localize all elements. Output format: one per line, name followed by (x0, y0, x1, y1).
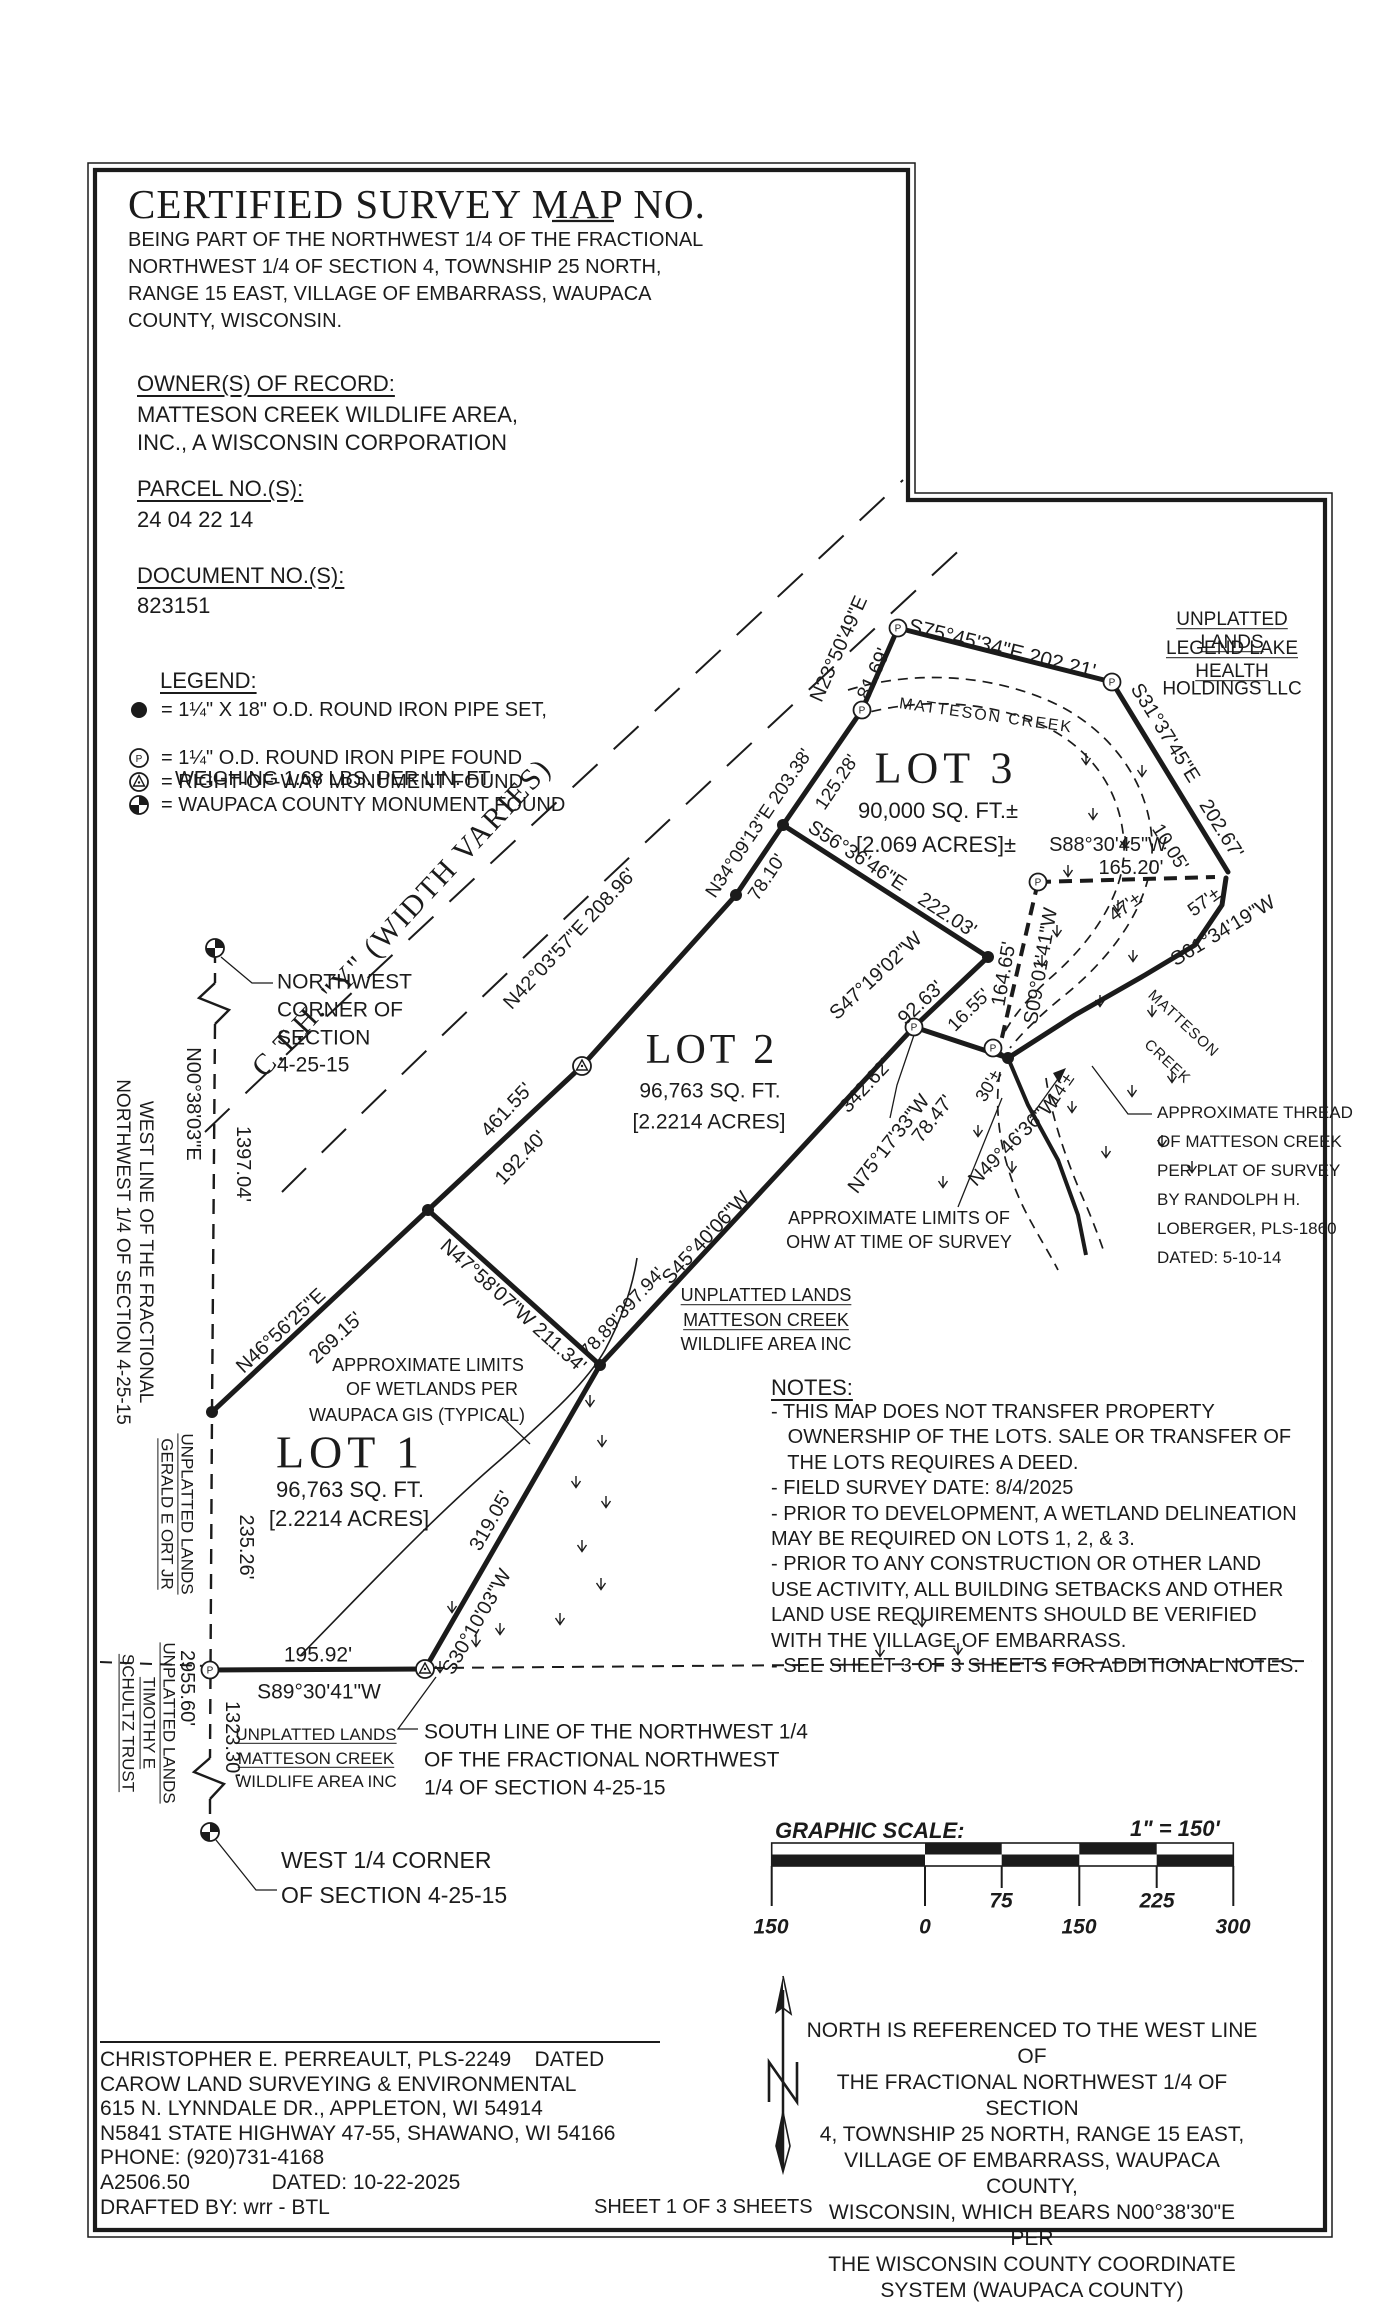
map-label: S89°30'41"W (257, 1679, 381, 1704)
sheet-number-label: SHEET 1 OF 3 SHEETS (594, 2196, 813, 2219)
legend-text: = 1¼" X 18" O.D. ROUND IRON PIPE SET, (161, 699, 547, 722)
map-label: 90,000 SQ. FT.± (858, 798, 1018, 824)
surveyor-line: N5841 STATE HIGHWAY 47-55, SHAWANO, WI 5… (100, 2122, 615, 2147)
map-label: [2.069 ACRES]± (856, 832, 1016, 858)
map-label: SECTION (277, 1025, 370, 1050)
map-label: OF WETLANDS PER (346, 1379, 518, 1401)
iron-pipe-found-icon: P (127, 746, 151, 770)
north-note-line: VILLAGE OF EMBARRASS, WAUPACA COUNTY, (806, 2148, 1258, 2200)
scale-tick-label: 75 (989, 1888, 1012, 1913)
map-label: 16.55' (944, 985, 996, 1037)
map-label: SOUTH LINE OF THE NORTHWEST 1/4 (424, 1719, 808, 1744)
map-label: 222.03' (913, 887, 981, 943)
north-note-line: NORTH IS REFERENCED TO THE WEST LINE OF (806, 2018, 1258, 2070)
map-label: S09°01'41"W (1019, 906, 1063, 1026)
document-heading: DOCUMENT NO.(S): (137, 563, 344, 589)
legend-item: P = 1¼" O.D. ROUND IRON PIPE FOUND (127, 747, 522, 770)
note-line: USE ACTIVITY, ALL BUILDING SETBACKS AND … (771, 1578, 1299, 1603)
map-label: MATTESON CREEK (898, 694, 1074, 737)
graphic-scale-label: GRAPHIC SCALE: (775, 1818, 964, 1844)
note-line: - THIS MAP DOES NOT TRANSFER PROPERTY (771, 1400, 1299, 1425)
north-note-line: WISCONSIN, WHICH BEARS N00°38'30"E PER (806, 2200, 1258, 2252)
map-label: CREEK (1140, 1036, 1194, 1088)
surveyor-line: DRAFTED BY: wrr - BTL (100, 2196, 615, 2221)
north-note-line: SYSTEM (WAUPACA COUNTY) (806, 2278, 1258, 2304)
north-note-line: THE FRACTIONAL NORTHWEST 1/4 OF SECTION (806, 2070, 1258, 2122)
map-label: [2.2214 ACRES] (269, 1506, 429, 1532)
map-label: N49°46'36"W (963, 1090, 1064, 1191)
county-monument-icon (127, 793, 151, 817)
note-line: WITH THE VILLAGE OF EMBARRASS. (771, 1629, 1299, 1654)
map-label: 57'± (1184, 883, 1226, 922)
subtitle: BEING PART OF THE NORTHWEST 1/4 OF THE F… (128, 227, 703, 335)
scale-ratio-label: 1" = 150' (1130, 1816, 1220, 1842)
map-label: DATED: 5-10-14 (1157, 1248, 1281, 1268)
scale-tick-label: 225 (1139, 1888, 1174, 1913)
note-line: - SEE SHEET 3 OF 3 SHEETS FOR ADDITIONAL… (771, 1654, 1299, 1679)
map-label: 202.67' (1194, 795, 1249, 863)
map-label: OF MATTESON CREEK (1157, 1132, 1342, 1152)
map-label: 92.63' (893, 976, 949, 1030)
map-label: LOT 2 (646, 1025, 778, 1075)
owner-line: MATTESON CREEK WILDLIFE AREA, (137, 401, 518, 429)
map-label: S45°40'06"W (657, 1187, 755, 1290)
map-label: PER PLAT OF SURVEY (1157, 1161, 1340, 1181)
map-label: OHW AT TIME OF SURVEY (786, 1232, 1012, 1254)
scale-tick-label: 300 (1215, 1914, 1250, 1939)
map-label: 235.26' (234, 1515, 258, 1580)
map-label: 96,763 SQ. FT. (276, 1477, 424, 1503)
map-label: LOT 1 (276, 1424, 424, 1479)
parcel-value: 24 04 22 14 (137, 506, 253, 534)
note-line: OWNERSHIP OF THE LOTS. SALE OR TRANSFER … (771, 1425, 1299, 1450)
owner-lines: MATTESON CREEK WILDLIFE AREA,INC., A WIS… (137, 401, 518, 457)
map-label: UNPLATTED LANDS TIMOTHY E SCHULTZ TRUST (117, 1642, 178, 1803)
map-label: N00°38'03"E (181, 1047, 205, 1160)
subtitle-line: RANGE 15 EAST, VILLAGE OF EMBARRASS, WAU… (128, 281, 703, 308)
note-line: THE LOTS REQUIRES A DEED. (771, 1451, 1299, 1476)
map-label: 4-25-15 (277, 1052, 349, 1077)
svg-text:P: P (136, 754, 143, 765)
survey-sheet: P (0, 0, 1398, 2304)
north-reference-note: NORTH IS REFERENCED TO THE WEST LINE OFT… (806, 2018, 1258, 2304)
page-title: CERTIFIED SURVEY MAP NO. (128, 180, 706, 228)
owner-heading: OWNER(S) OF RECORD: (137, 371, 395, 397)
map-label: S75°45'34"E 202.21' (906, 614, 1098, 685)
map-label: MATTESON CREEK (683, 1310, 849, 1332)
scale-tick-label: 0 (919, 1914, 931, 1939)
note-line: - FIELD SURVEY DATE: 8/4/2025 (771, 1476, 1299, 1501)
map-label: S88°30'45"W (1049, 833, 1167, 857)
subtitle-line: BEING PART OF THE NORTHWEST 1/4 OF THE F… (128, 227, 703, 254)
document-value: 823151 (137, 592, 210, 620)
legend-item: = RIGHT-OF-WAY MONUMENT FOUND (127, 771, 523, 794)
owner-line: INC., A WISCONSIN CORPORATION (137, 429, 518, 457)
subtitle-line: NORTHWEST 1/4 OF SECTION 4, TOWNSHIP 25 … (128, 254, 703, 281)
iron-pipe-set-icon (127, 698, 151, 722)
legend-text: = RIGHT-OF-WAY MONUMENT FOUND (161, 771, 523, 794)
map-label: NORTHWEST (277, 969, 412, 994)
map-label: UNPLATTED LANDS GERALD E ORT JR (156, 1433, 197, 1594)
map-label: APPROXIMATE LIMITS OF (788, 1208, 1010, 1230)
surveyor-block: CHRISTOPHER E. PERREAULT, PLS-2249 DATED… (100, 2048, 615, 2220)
map-label: 125.28' (811, 751, 864, 815)
subtitle-line: COUNTY, WISCONSIN. (128, 308, 703, 335)
map-label: 1397.04' (231, 1126, 255, 1202)
map-label: APPROXIMATE THREAD (1157, 1103, 1353, 1123)
map-label: LOT 3 (875, 743, 1018, 796)
map-label: UNPLATTED LANDS (235, 1725, 396, 1745)
map-label: WEST LINE OF THE FRACTIONAL NORTHWEST 1/… (110, 1079, 156, 1425)
map-label: BY RANDOLPH H. (1157, 1190, 1300, 1210)
map-label: 319.05' (464, 1487, 517, 1555)
note-line: - PRIOR TO ANY CONSTRUCTION OR OTHER LAN… (771, 1552, 1299, 1577)
map-label: LOBERGER, PLS-1860 (1157, 1219, 1337, 1239)
map-label: MATTESON CREEK (238, 1749, 394, 1769)
surveyor-line: CHRISTOPHER E. PERREAULT, PLS-2249 DATED (100, 2048, 615, 2073)
scale-tick-label: 150 (753, 1914, 788, 1939)
map-label: OF THE FRACTIONAL NORTHWEST (424, 1747, 779, 1772)
map-label: LEGEND LAKE HEALTH (1149, 638, 1315, 684)
map-label: [2.2214 ACRES] (633, 1109, 786, 1134)
surveyor-line: PHONE: (920)731-4168 (100, 2146, 615, 2171)
north-note-line: 4, TOWNSHIP 25 NORTH, RANGE 15 EAST, (806, 2122, 1258, 2148)
note-line: LAND USE REQUIREMENTS SHOULD BE VERIFIED (771, 1603, 1299, 1628)
row-monument-icon (127, 770, 151, 794)
scale-tick-label: 150 (1061, 1914, 1096, 1939)
notes-lines: - THIS MAP DOES NOT TRANSFER PROPERTY OW… (771, 1400, 1299, 1679)
map-label: 195.92' (284, 1642, 352, 1667)
map-label: 47'± (1105, 888, 1147, 927)
surveyor-line: A2506.50 DATED: 10-22-2025 (100, 2171, 615, 2196)
map-label: 1/4 OF SECTION 4-25-15 (424, 1775, 666, 1800)
map-label: 81.69' (852, 645, 896, 704)
legend-heading: LEGEND: (160, 668, 257, 694)
legend-text: = 1¼" O.D. ROUND IRON PIPE FOUND (161, 747, 522, 770)
map-label: 30'± (971, 1066, 1006, 1106)
map-label: 342.62' (835, 1054, 897, 1118)
map-label: 78.10' (744, 850, 792, 905)
note-line: MAY BE REQUIRED ON LOTS 1, 2, & 3. (771, 1527, 1299, 1552)
map-label: S30°10'03"W (437, 1565, 517, 1679)
map-label: N42°03'57"E 208.96' (498, 864, 641, 1015)
map-label: 2955.60' (175, 1650, 199, 1726)
map-label: CORNER OF (277, 997, 403, 1022)
note-line: - PRIOR TO DEVELOPMENT, A WETLAND DELINE… (771, 1502, 1299, 1527)
map-label: OF SECTION 4-25-15 (281, 1882, 507, 1910)
notes-heading: NOTES: (771, 1375, 853, 1401)
map-label: WEST 1/4 CORNER (281, 1847, 491, 1875)
north-note-line: THE WISCONSIN COUNTY COORDINATE (806, 2252, 1258, 2278)
map-label: HOLDINGS LLC (1162, 679, 1301, 702)
map-label: APPROXIMATE LIMITS (332, 1355, 524, 1377)
map-label: 96,763 SQ. FT. (639, 1078, 780, 1103)
map-label: 165.20' (1099, 856, 1164, 880)
map-label: UNPLATTED LANDS (681, 1285, 852, 1307)
parcel-heading: PARCEL NO.(S): (137, 476, 303, 502)
surveyor-line: 615 N. LYNNDALE DR., APPLETON, WI 54914 (100, 2097, 615, 2122)
map-label: WILDLIFE AREA INC (235, 1772, 397, 1792)
map-label: 78.89' (576, 1311, 628, 1364)
surveyor-line: CAROW LAND SURVEYING & ENVIRONMENTAL (100, 2073, 615, 2098)
map-label: WILDLIFE AREA INC (680, 1334, 851, 1356)
